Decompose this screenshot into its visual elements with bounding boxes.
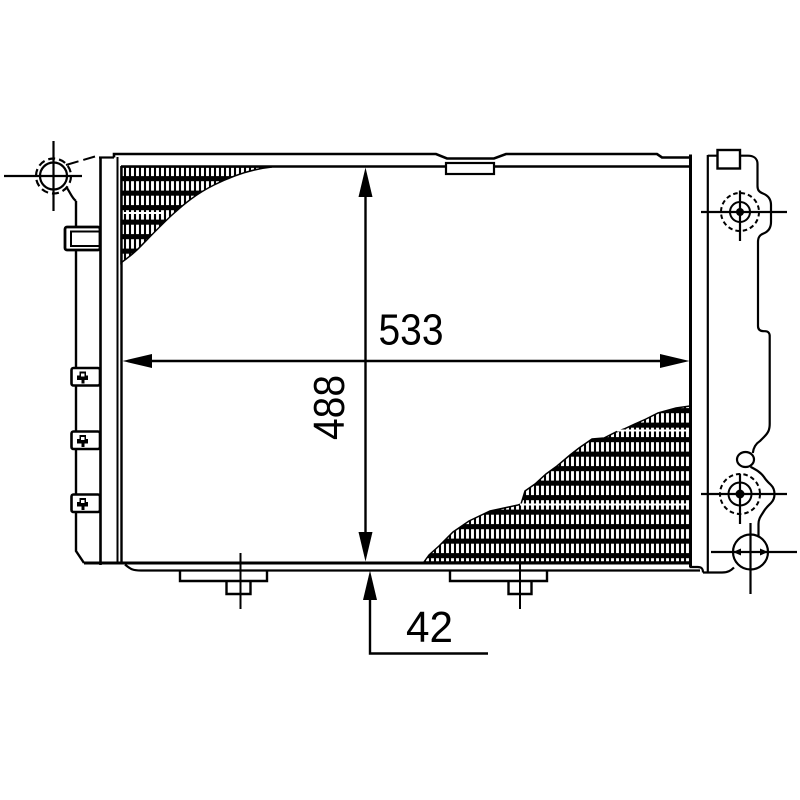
svg-text:42: 42 — [406, 603, 453, 652]
svg-text:488: 488 — [305, 375, 354, 440]
svg-text:533: 533 — [379, 306, 444, 355]
